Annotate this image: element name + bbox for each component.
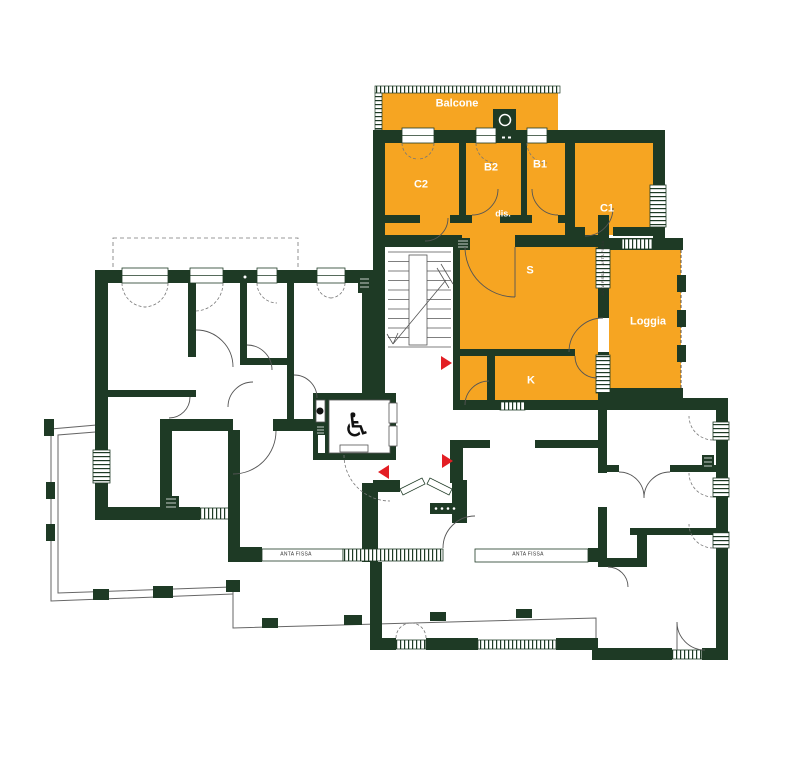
staircase	[387, 252, 453, 347]
floor-plan: Balcone C2 B2 B1 C1 dis. S K Loggia ANTA…	[0, 0, 800, 759]
room-label-dis: dis.	[495, 210, 511, 219]
room-label-k: K	[527, 376, 535, 387]
room-label-b2: B2	[484, 163, 498, 174]
annotation-anta-fissa-vertical-2: ANTA FISSA	[600, 241, 605, 266]
entrance-arrow-stair	[441, 356, 452, 370]
room-label-s: S	[526, 266, 533, 277]
room-label-c1: C1	[600, 204, 614, 215]
annotation-anta-fissa-vertical: ANTA FISSA ANTA FISSA	[601, 239, 605, 298]
room-label-balcone: Balcone	[436, 99, 479, 110]
wheelchair-icon: ♿	[342, 409, 372, 442]
entrance-arrow-left-unit	[378, 465, 389, 479]
floor-plan-drawing	[0, 0, 800, 759]
room-label-b1: B1	[533, 160, 547, 171]
annotation-anta-fissa-right: ANTA FISSA	[512, 553, 544, 558]
room-label-loggia: Loggia	[630, 317, 666, 328]
annotation-anta-fissa-vertical-1: ANTA FISSA	[600, 271, 605, 296]
annotation-anta-fissa-left: ANTA FISSA	[280, 553, 312, 558]
room-label-c2: C2	[414, 180, 428, 191]
